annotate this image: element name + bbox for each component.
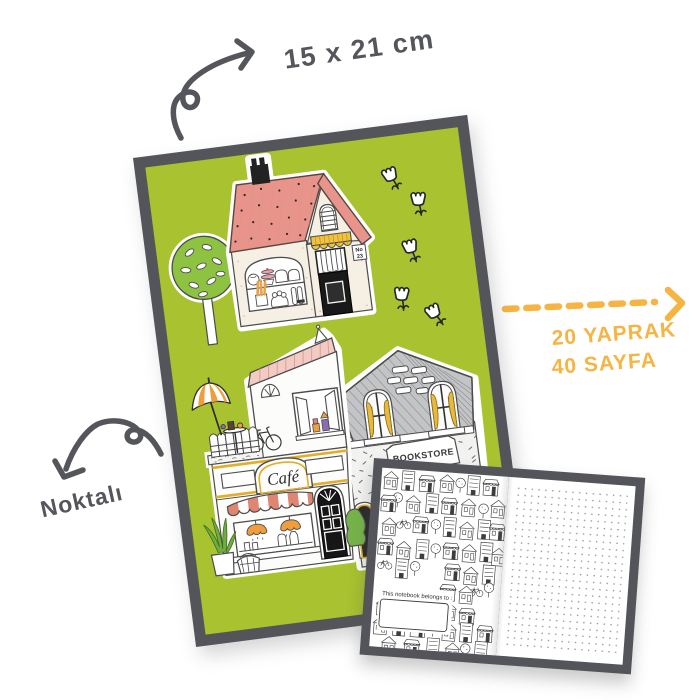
svg-text:23: 23	[357, 253, 364, 260]
